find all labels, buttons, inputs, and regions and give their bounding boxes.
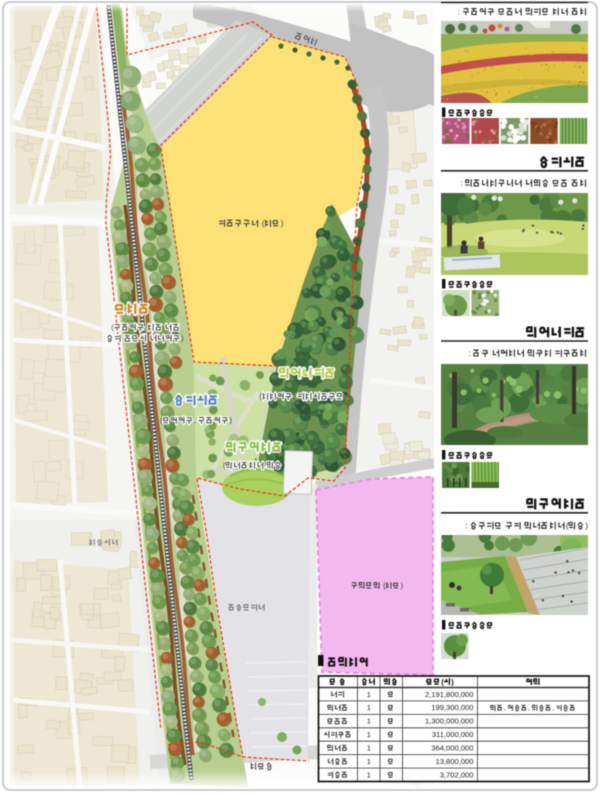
svg-text:(: (	[259, 392, 262, 401]
svg-text:): )	[229, 416, 232, 425]
svg-text:,: ,	[293, 392, 295, 401]
svg-text:3,702,000: 3,702,000	[440, 770, 474, 779]
svg-text:,: ,	[504, 705, 506, 712]
svg-text::: :	[460, 178, 462, 188]
svg-text:1: 1	[367, 703, 371, 712]
svg-text:): )	[585, 521, 588, 531]
svg-text:1: 1	[367, 690, 371, 699]
svg-text:2,191,800,000: 2,191,800,000	[425, 690, 474, 699]
svg-text:1: 1	[367, 730, 371, 739]
svg-text:): )	[181, 334, 184, 343]
svg-text:1: 1	[367, 717, 371, 726]
svg-text:364,000,000: 364,000,000	[431, 744, 473, 753]
svg-text:,: ,	[552, 705, 554, 712]
svg-text:1: 1	[367, 744, 371, 753]
svg-text:(: (	[111, 323, 114, 332]
svg-text::: :	[469, 348, 471, 358]
svg-text:199,300,000: 199,300,000	[431, 703, 473, 712]
svg-text:,: ,	[194, 416, 196, 425]
svg-text:(: (	[566, 521, 569, 531]
svg-text:(: (	[223, 461, 226, 470]
svg-text:(: (	[262, 219, 265, 228]
svg-text:,: ,	[528, 705, 530, 712]
svg-text::: :	[465, 521, 467, 531]
svg-text:): )	[282, 461, 285, 470]
svg-text::: :	[458, 7, 460, 17]
svg-text:13,800,000: 13,800,000	[435, 757, 473, 766]
svg-text:1: 1	[367, 770, 371, 779]
svg-text:311,000,000: 311,000,000	[432, 730, 474, 739]
svg-text:): )	[281, 219, 284, 228]
svg-text:): )	[344, 392, 347, 401]
svg-text:1,300,000,000: 1,300,000,000	[425, 717, 474, 726]
svg-text:(: (	[160, 416, 163, 425]
svg-text:1: 1	[367, 757, 371, 766]
